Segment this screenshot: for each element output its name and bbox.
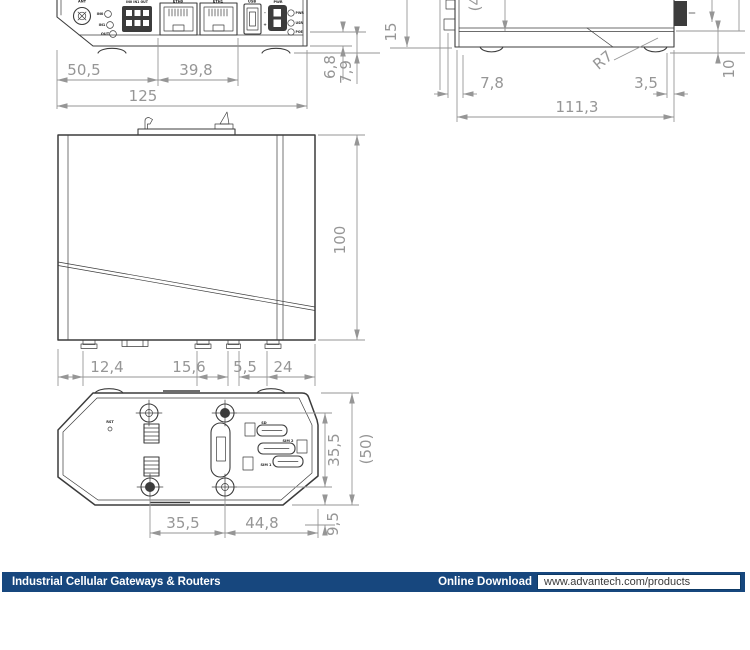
led-poe-label: POE (296, 30, 303, 34)
dim-35-5-horizontal: 35,5 (166, 514, 199, 532)
online-download-label: Online Download (438, 576, 532, 588)
din-rail-clip (138, 112, 235, 135)
usb-port: USB (244, 0, 261, 34)
dim-12-4: 12,4 (90, 358, 123, 376)
io-terminal-connector: IN0 IN1 OUT (122, 0, 152, 32)
dim-r7: R7 (589, 47, 616, 74)
reset-label: RST (106, 420, 114, 424)
dim-9-5: 9,5 (324, 512, 342, 536)
dim-45-ref: (45) (466, 0, 484, 11)
power-connector: - + PWR (263, 0, 287, 31)
mounting-screws (136, 400, 238, 500)
bottom-feet (81, 340, 281, 349)
dim-50-5: 50,5 (67, 61, 100, 79)
dim-7-9: 7,9 (337, 60, 355, 84)
main-view: 12,4 15,6 5,5 24 100 (58, 112, 365, 386)
led-usr-label: USR (296, 21, 304, 25)
eth1-port: ETH1 (200, 0, 237, 35)
screw-bottom-left (137, 474, 163, 500)
screw-bottom-right (212, 474, 238, 500)
dimension-drawing: ANT IN0 IN1 OUT IN0 IN1 OUT (0, 0, 750, 570)
dim-24: 24 (273, 358, 292, 376)
dim-44-8: 44,8 (245, 514, 278, 532)
dim-15: 15 (382, 22, 400, 41)
main-outline (58, 112, 315, 349)
dim-15-6: 15,6 (172, 358, 205, 376)
dim-125: 125 (129, 87, 158, 105)
io-header-label: IN0 IN1 OUT (126, 0, 149, 4)
screw-top-right (212, 400, 238, 426)
io-label-out: OUT (101, 32, 110, 36)
sim-card-slots: SD SIM 2 SIM 1 (243, 421, 307, 470)
side-antenna-connector (674, 1, 687, 26)
dim-35-5-vertical: 35,5 (325, 433, 343, 466)
dim-39-8: 39,8 (179, 61, 212, 79)
dim-7-8: 7,8 (480, 74, 504, 92)
screw-top-left (136, 400, 162, 426)
io-label-in1: IN1 (99, 23, 106, 27)
led-indicators: PWR USR POE (288, 10, 305, 35)
dim-3-5: 3,5 (634, 74, 658, 92)
reset-button: RST (106, 420, 114, 431)
datasheet-page: ANT IN0 IN1 OUT IN0 IN1 OUT (0, 0, 750, 650)
power-plus-mark: + (263, 22, 266, 27)
dim-100: 100 (331, 226, 349, 255)
footer-bar: Industrial Cellular Gateways & Routers O… (2, 572, 745, 592)
ant-label: ANT (78, 0, 87, 4)
eth0-label: ETH0 (173, 0, 184, 4)
sim2-label: SIM 2 (283, 439, 295, 443)
front-panel-view: ANT IN0 IN1 OUT IN0 IN1 OUT (57, 0, 380, 109)
dim-5-5: 5,5 (233, 358, 257, 376)
bottom-outline (58, 389, 318, 505)
center-slot (211, 423, 230, 477)
download-url[interactable]: www.advantech.com/products (544, 576, 690, 588)
download-url-box[interactable]: www.advantech.com/products (537, 574, 741, 590)
dim-10: 10 (720, 59, 738, 78)
sim1-label: SIM 1 (261, 463, 273, 467)
sd-slot-label: SD (261, 421, 267, 425)
vent-slots (144, 424, 159, 476)
bottom-view: RST SD SIM 2 SIM 1 35,5 (50) (58, 389, 375, 538)
power-minus-mark: - (264, 10, 266, 15)
ant-connector: ANT (74, 0, 91, 25)
led-pwr-label: PWR (296, 11, 305, 15)
footer-series-title: Industrial Cellular Gateways & Routers (12, 576, 220, 588)
side-view: (45) 15 7,8 R7 3,5 111,3 10 (382, 0, 745, 122)
eth0-port: ETH0 (160, 0, 197, 35)
footer-download-area: Online Download www.advantech.com/produc… (438, 572, 741, 592)
io-label-in0: IN0 (97, 12, 104, 16)
dim-111-3: 111,3 (556, 98, 599, 116)
usb-label: USB (248, 0, 256, 4)
power-label: PWR (273, 0, 282, 4)
main-dimensions: 12,4 15,6 5,5 24 100 (58, 135, 365, 386)
dim-50-ref: (50) (357, 434, 375, 465)
eth1-label: ETH1 (213, 0, 224, 4)
io-indicators: IN0 IN1 OUT (97, 11, 117, 38)
side-dimensions: (45) 15 7,8 R7 3,5 111,3 10 (382, 0, 745, 122)
